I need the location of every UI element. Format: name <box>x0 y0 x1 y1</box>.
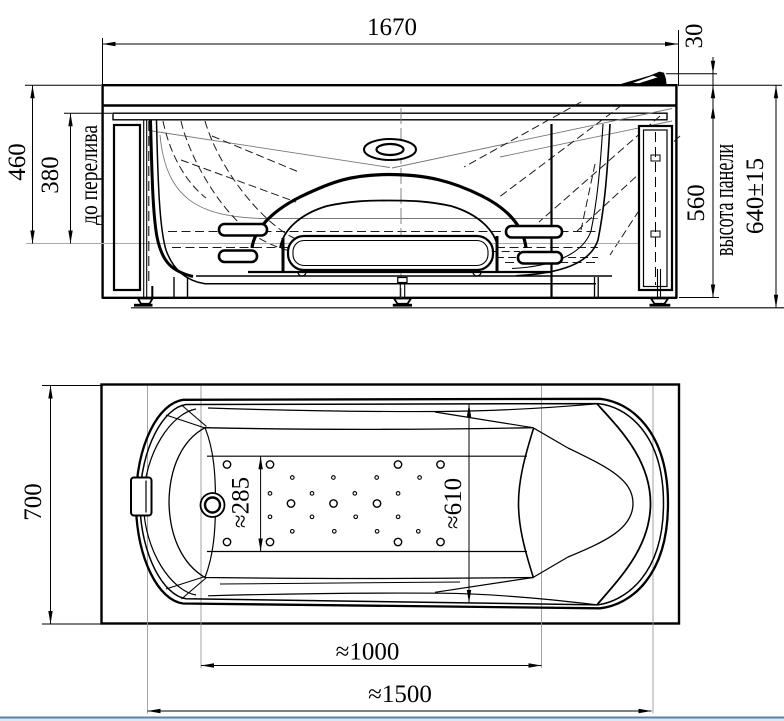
svg-text:до перелива: до перелива <box>76 125 103 225</box>
svg-text:≈1500: ≈1500 <box>368 681 432 708</box>
svg-text:700: 700 <box>20 483 47 521</box>
svg-text:≈285: ≈285 <box>228 477 255 528</box>
svg-text:≈610: ≈610 <box>440 478 467 529</box>
svg-text:≈1000: ≈1000 <box>336 639 400 666</box>
svg-text:460: 460 <box>4 143 31 181</box>
svg-text:30: 30 <box>681 24 708 49</box>
svg-text:640±15: 640±15 <box>742 158 769 234</box>
svg-text:560: 560 <box>683 184 710 222</box>
svg-text:380: 380 <box>37 156 64 194</box>
svg-text:1670: 1670 <box>367 14 417 41</box>
svg-text:высота панели: высота панели <box>709 144 740 256</box>
